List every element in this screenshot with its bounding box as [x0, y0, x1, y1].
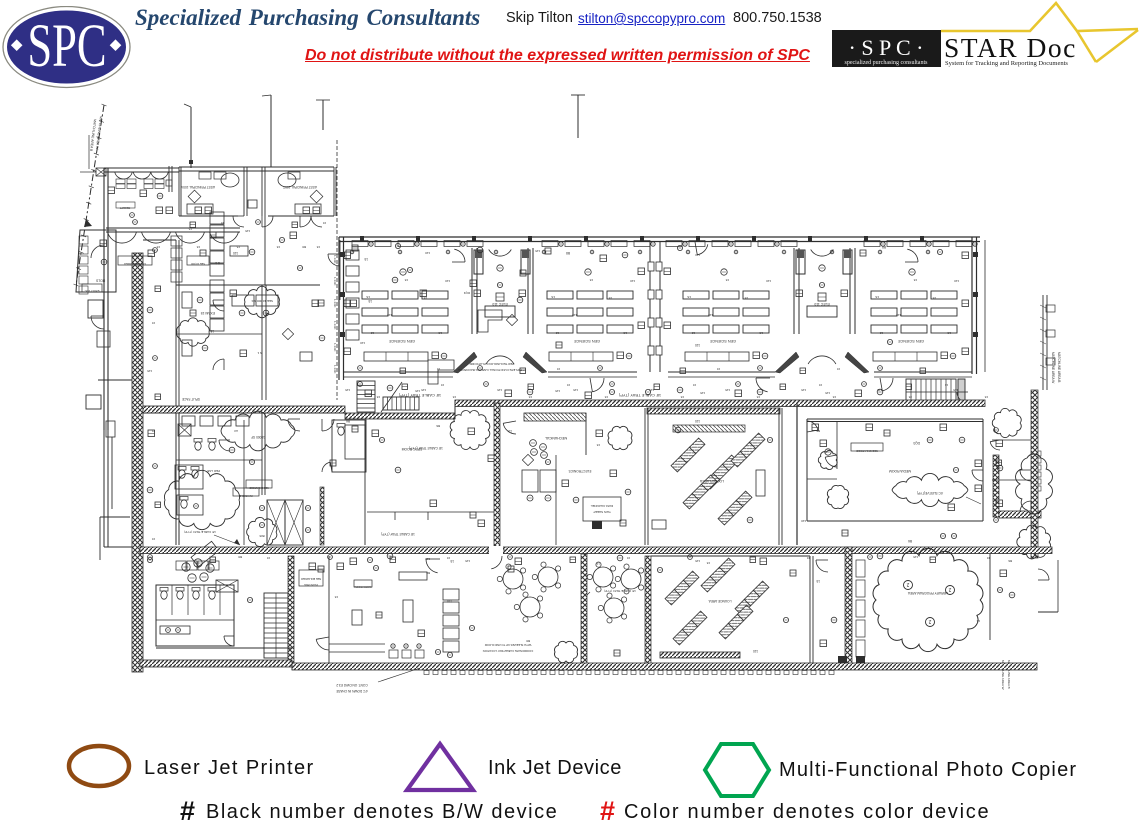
svg-text:110: 110: [233, 251, 238, 255]
svg-text:COMPLETE FUNCTIONAL CABLING BA: COMPLETE FUNCTIONAL CABLING BACKBONE: [458, 368, 526, 372]
svg-text:15: 15: [376, 395, 380, 399]
svg-text:15: 15: [913, 278, 917, 282]
svg-text:15: 15: [322, 221, 326, 225]
svg-text:1-1/4C: 1-1/4C: [333, 299, 337, 307]
svg-text:ELEC 110: ELEC 110: [492, 302, 507, 306]
svg-text:RECEPT: RECEPT: [119, 206, 130, 210]
svg-text:15: 15: [556, 367, 560, 371]
svg-text:110: 110: [695, 419, 700, 423]
svg-text:15: 15: [370, 331, 374, 335]
svg-text:15: 15: [151, 321, 155, 325]
svg-text:WITH SLEEVES UP TO 2ND FLOOR: WITH SLEEVES UP TO 2ND FLOOR: [485, 643, 532, 647]
svg-text:B6: B6: [1008, 559, 1012, 563]
svg-text:15: 15: [832, 395, 836, 399]
svg-text:115: 115: [695, 559, 700, 563]
svg-text:B08: B08: [259, 534, 264, 538]
svg-text:15: 15: [692, 383, 696, 387]
svg-text:15: 15: [818, 383, 822, 387]
svg-text:15: 15: [196, 245, 200, 249]
svg-text:110: 110: [753, 649, 758, 653]
svg-text:EXAM 15: EXAM 15: [201, 311, 215, 315]
svg-text:110: 110: [896, 313, 901, 317]
svg-text:115: 115: [573, 388, 578, 392]
svg-text:15: 15: [986, 556, 990, 560]
svg-text:110: 110: [708, 313, 713, 317]
svg-text:1S: 1S: [366, 295, 370, 299]
svg-text:1-1/4C: 1-1/4C: [333, 343, 337, 351]
svg-text:ELEC 110: ELEC 110: [814, 302, 829, 306]
svg-text:15: 15: [220, 221, 224, 225]
svg-text:#: #: [180, 796, 195, 826]
svg-text:ELECTRONICS: ELECTRONICS: [569, 469, 592, 473]
svg-text:1S: 1S: [687, 295, 691, 299]
svg-text:115: 115: [555, 389, 560, 393]
svg-text:LOCKER AREA: LOCKER AREA: [699, 479, 724, 483]
svg-text:1-1/4C: 1-1/4C: [333, 277, 337, 285]
svg-text:INVISIBLE: INVISIBLE: [239, 494, 253, 498]
svg-text:MECHANICAL: MECHANICAL: [545, 436, 567, 440]
svg-text:15: 15: [706, 561, 710, 565]
svg-text:PER TECHNOLOGY PLATFORM: PER TECHNOLOGY PLATFORM: [469, 362, 514, 366]
svg-text:115: 115: [425, 557, 430, 561]
svg-text:1S: 1S: [947, 331, 951, 335]
svg-text:18' CABLE TRAY (TYP): 18' CABLE TRAY (TYP): [618, 393, 661, 398]
svg-text:GEN SCIENCE: GEN SCIENCE: [388, 339, 415, 343]
svg-text:18' CABLE TRAY (TYP): 18' CABLE TRAY (TYP): [604, 589, 636, 593]
svg-text:15: 15: [151, 429, 155, 433]
svg-text:115: 115: [877, 388, 882, 392]
svg-text:115: 115: [415, 389, 420, 393]
svg-text:110: 110: [425, 251, 430, 255]
svg-text:ASST PRINCIPAL 100T: ASST PRINCIPAL 100T: [283, 185, 317, 189]
svg-text:110: 110: [954, 279, 959, 283]
svg-text:SEE 10,040: SEE 10,040: [191, 262, 205, 266]
svg-text:15: 15: [806, 556, 810, 560]
svg-text:15: 15: [566, 383, 570, 387]
svg-text:B6: B6: [816, 429, 820, 433]
svg-text:15: 15: [276, 245, 280, 249]
svg-text:115: 115: [245, 229, 250, 233]
svg-text:B8: B8: [426, 571, 430, 575]
svg-text:15: 15: [680, 395, 684, 399]
svg-text:15: 15: [555, 331, 559, 335]
svg-text:GEN SCIENCE: GEN SCIENCE: [897, 339, 924, 343]
svg-text:1S: 1S: [759, 331, 763, 335]
svg-text:115: 115: [497, 388, 502, 392]
svg-text:15: 15: [589, 278, 593, 282]
svg-text:115: 115: [801, 388, 806, 392]
svg-text:15: 15: [626, 556, 630, 560]
svg-text:110: 110: [360, 341, 365, 345]
svg-text:15: 15: [596, 443, 600, 447]
svg-text:B8: B8: [882, 245, 886, 249]
svg-text:15: 15: [436, 367, 440, 371]
svg-text:B6: B6: [436, 424, 440, 428]
svg-text:GEN SCIENCE: GEN SCIENCE: [709, 339, 736, 343]
svg-text:15: 15: [596, 561, 600, 565]
svg-text:15: 15: [440, 383, 444, 387]
svg-text:COVERED AREA: COVERED AREA: [124, 262, 146, 266]
svg-text:115: 115: [535, 249, 540, 253]
svg-text:115: 115: [147, 369, 152, 373]
svg-text:EXACT LOC: EXACT LOC: [85, 289, 100, 293]
svg-text:PLAN DWG: PLAN DWG: [304, 583, 318, 587]
svg-text:THIS SHEET: THIS SHEET: [593, 510, 611, 514]
svg-text:COORDINATE CABLETRAY LOCATION: COORDINATE CABLETRAY LOCATION: [483, 649, 533, 653]
svg-text:PED LAB: PED LAB: [207, 469, 220, 473]
svg-text:15: 15: [908, 395, 912, 399]
svg-text:S 1: S 1: [257, 351, 262, 355]
svg-text:A3: A3: [234, 429, 238, 433]
svg-text:DQ3: DQ3: [464, 291, 471, 295]
svg-text:15: 15: [716, 367, 720, 371]
svg-text:15: 15: [404, 278, 408, 282]
svg-text:1S: 1S: [551, 295, 555, 299]
svg-text:B8: B8: [238, 555, 242, 559]
svg-text:15: 15: [984, 395, 988, 399]
svg-text:115: 115: [953, 388, 958, 392]
svg-text:15: 15: [756, 395, 760, 399]
svg-text:Multi-Functional Photo Copier: Multi-Functional Photo Copier: [779, 759, 1077, 781]
svg-text:115: 115: [913, 555, 918, 559]
svg-text:1S: 1S: [623, 331, 627, 335]
svg-text:Laser Jet Printer: Laser Jet Printer: [144, 757, 315, 779]
svg-text:15: 15: [364, 257, 368, 261]
svg-text:110: 110: [630, 279, 635, 283]
svg-text:110: 110: [766, 279, 771, 283]
svg-text:S 1: S 1: [215, 261, 220, 265]
svg-text:110: 110: [801, 519, 806, 523]
svg-text:115: 115: [345, 388, 350, 392]
svg-text:CONT. ON DWG E3.2: CONT. ON DWG E3.2: [336, 683, 368, 687]
svg-text:110: 110: [572, 313, 577, 317]
svg-text:WORK ROOM: WORK ROOM: [355, 585, 372, 589]
svg-text:15: 15: [236, 245, 240, 249]
svg-text:110: 110: [387, 313, 392, 317]
svg-text:15: 15: [725, 278, 729, 282]
svg-text:SEE ENLARGED: SEE ENLARGED: [856, 449, 878, 453]
svg-text:15: 15: [316, 245, 320, 249]
svg-text:SPLIT FACE: SPLIT FACE: [182, 397, 200, 401]
svg-text:15: 15: [528, 395, 532, 399]
svg-text:15: 15: [976, 619, 980, 623]
svg-text:115: 115: [649, 388, 654, 392]
svg-text:GEN SCIENCE: GEN SCIENCE: [573, 339, 600, 343]
svg-text:110: 110: [447, 599, 452, 603]
svg-text:15: 15: [151, 537, 155, 541]
svg-text:Color number denotes color dev: Color number denotes color device: [624, 801, 990, 823]
svg-text:15: 15: [604, 395, 608, 399]
svg-text:Ink Jet Device: Ink Jet Device: [488, 757, 622, 779]
svg-text:4'C SLEEVE(TYP): 4'C SLEEVE(TYP): [917, 491, 943, 495]
svg-text:B8: B8: [526, 639, 530, 643]
svg-text:LOUNGE AREA: LOUNGE AREA: [708, 599, 732, 603]
svg-text:115: 115: [825, 391, 830, 395]
svg-text:DQ3: DQ3: [913, 441, 920, 445]
svg-text:DATA CHANNEL: DATA CHANNEL: [590, 504, 613, 508]
svg-text:Black number denotes B/W devic: Black number denotes B/W device: [206, 801, 558, 823]
svg-text:B6: B6: [908, 539, 912, 543]
svg-text:1-1/4C: 1-1/4C: [333, 255, 337, 263]
svg-text:15: 15: [508, 429, 512, 433]
svg-text:2: 2: [906, 581, 909, 587]
svg-text:15: 15: [452, 395, 456, 399]
svg-text:B8: B8: [566, 251, 570, 255]
svg-text:B8: B8: [302, 245, 306, 249]
svg-text:1S: 1S: [438, 331, 442, 335]
svg-text:B6: B6: [346, 419, 350, 423]
svg-text:MATCHLINE AREA B: MATCHLINE AREA B: [1057, 352, 1061, 382]
svg-text:1S: 1S: [875, 295, 879, 299]
svg-text:MATCHLINE AREA W: MATCHLINE AREA W: [1051, 352, 1055, 383]
svg-text:18' CABLE TRAY (TYP): 18' CABLE TRAY (TYP): [409, 446, 443, 450]
svg-text:115: 115: [725, 388, 730, 392]
svg-text:SEE ENLARGED: SEE ENLARGED: [301, 577, 321, 581]
svg-text:115: 115: [421, 388, 426, 392]
svg-text:LIBRARY PROGRAM AREA: LIBRARY PROGRAM AREA: [907, 591, 948, 595]
svg-text:1-1/4C: 1-1/4C: [333, 321, 337, 329]
svg-text:15: 15: [944, 383, 948, 387]
svg-text:ASST PRINCIPAL 100V: ASST PRINCIPAL 100V: [180, 185, 215, 189]
svg-text:4'C DOWN IN CHASE: 4'C DOWN IN CHASE: [336, 689, 368, 693]
svg-text:15: 15: [992, 489, 996, 493]
svg-text:15: 15: [744, 296, 748, 300]
svg-text:1-1/4C: 1-1/4C: [333, 365, 337, 373]
svg-text:15: 15: [446, 556, 450, 560]
svg-text:SEE 10,000 S.F.: SEE 10,000 S.F.: [251, 299, 273, 303]
svg-text:115: 115: [465, 559, 470, 563]
svg-text:2: 2: [948, 586, 951, 592]
svg-text:15: 15: [816, 579, 820, 583]
svg-text:#: #: [600, 796, 615, 826]
svg-text:15: 15: [932, 296, 936, 300]
svg-text:15: 15: [368, 299, 372, 303]
svg-text:15: 15: [423, 296, 427, 300]
svg-text:15: 15: [691, 331, 695, 335]
svg-text:15: 15: [608, 296, 612, 300]
svg-text:18' CABLE TRAY (TYP): 18' CABLE TRAY (TYP): [381, 532, 415, 536]
svg-text:15: 15: [879, 331, 883, 335]
svg-text:15: 15: [266, 556, 270, 560]
svg-text:115: 115: [700, 391, 705, 395]
svg-text:2: 2: [928, 618, 931, 624]
svg-text:18' CABLE TRAY (TYP): 18' CABLE TRAY (TYP): [184, 530, 216, 534]
svg-text:15000 SF: 15000 SF: [251, 435, 265, 439]
svg-text:110: 110: [445, 279, 450, 283]
svg-text:15: 15: [836, 367, 840, 371]
svg-text:MEDIA ROOM: MEDIA ROOM: [889, 469, 911, 473]
svg-text:110: 110: [695, 343, 700, 347]
svg-text:15: 15: [334, 595, 338, 599]
